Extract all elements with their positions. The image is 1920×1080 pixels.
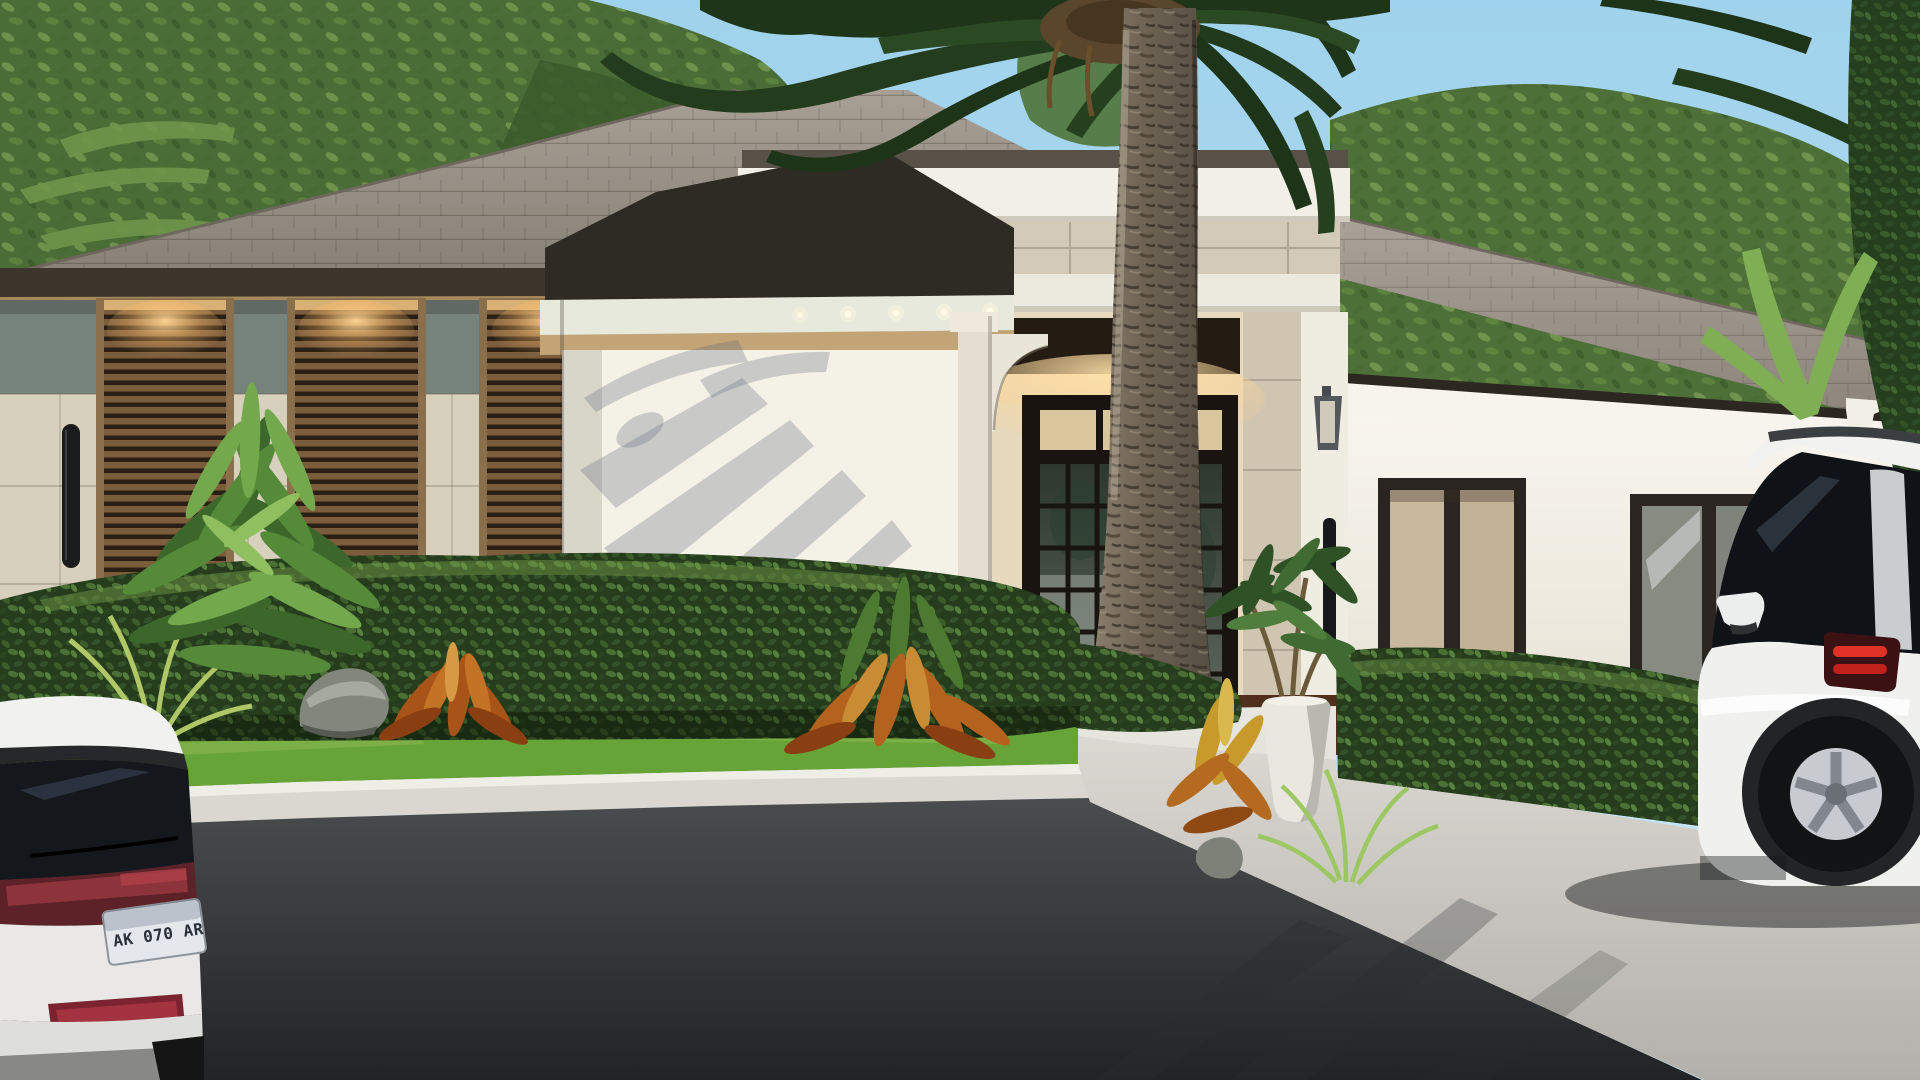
suv-rocker <box>1700 856 1786 880</box>
suv-tail-light <box>1824 632 1901 692</box>
downlight-glow <box>107 300 223 360</box>
car-left-white-hatchback: AK 070 AR <box>0 696 207 1080</box>
scene-svg: AK 070 AR <box>0 0 1920 1080</box>
tower-stone-pilaster <box>1243 312 1301 706</box>
wall-sconce-left-1 <box>62 424 80 568</box>
rendering-canvas: AK 070 AR <box>0 0 1920 1080</box>
suv-alloy-wheel <box>1790 748 1882 840</box>
downlight-glow <box>298 300 414 360</box>
left-wing-stone-band-upper <box>0 300 562 396</box>
